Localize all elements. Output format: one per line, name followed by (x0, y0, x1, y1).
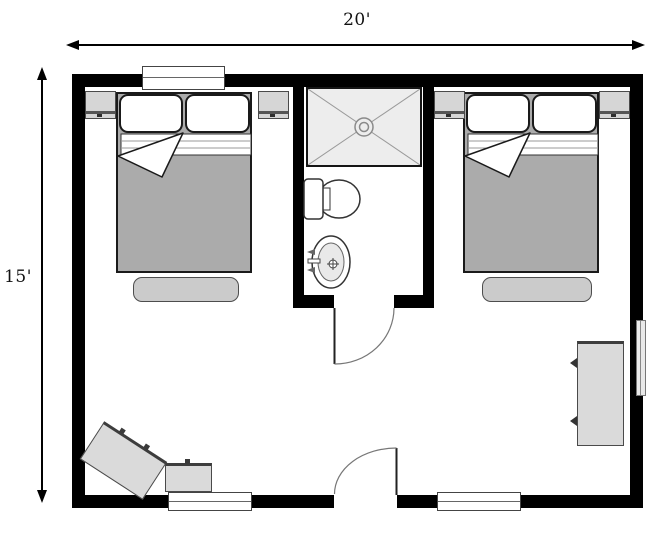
bathroom-door-swing-arc (335, 308, 395, 364)
floor-plan-canvas: 20' 15' (0, 0, 647, 534)
door-symbols (0, 0, 647, 534)
entry-door-swing-arc (335, 448, 397, 494)
